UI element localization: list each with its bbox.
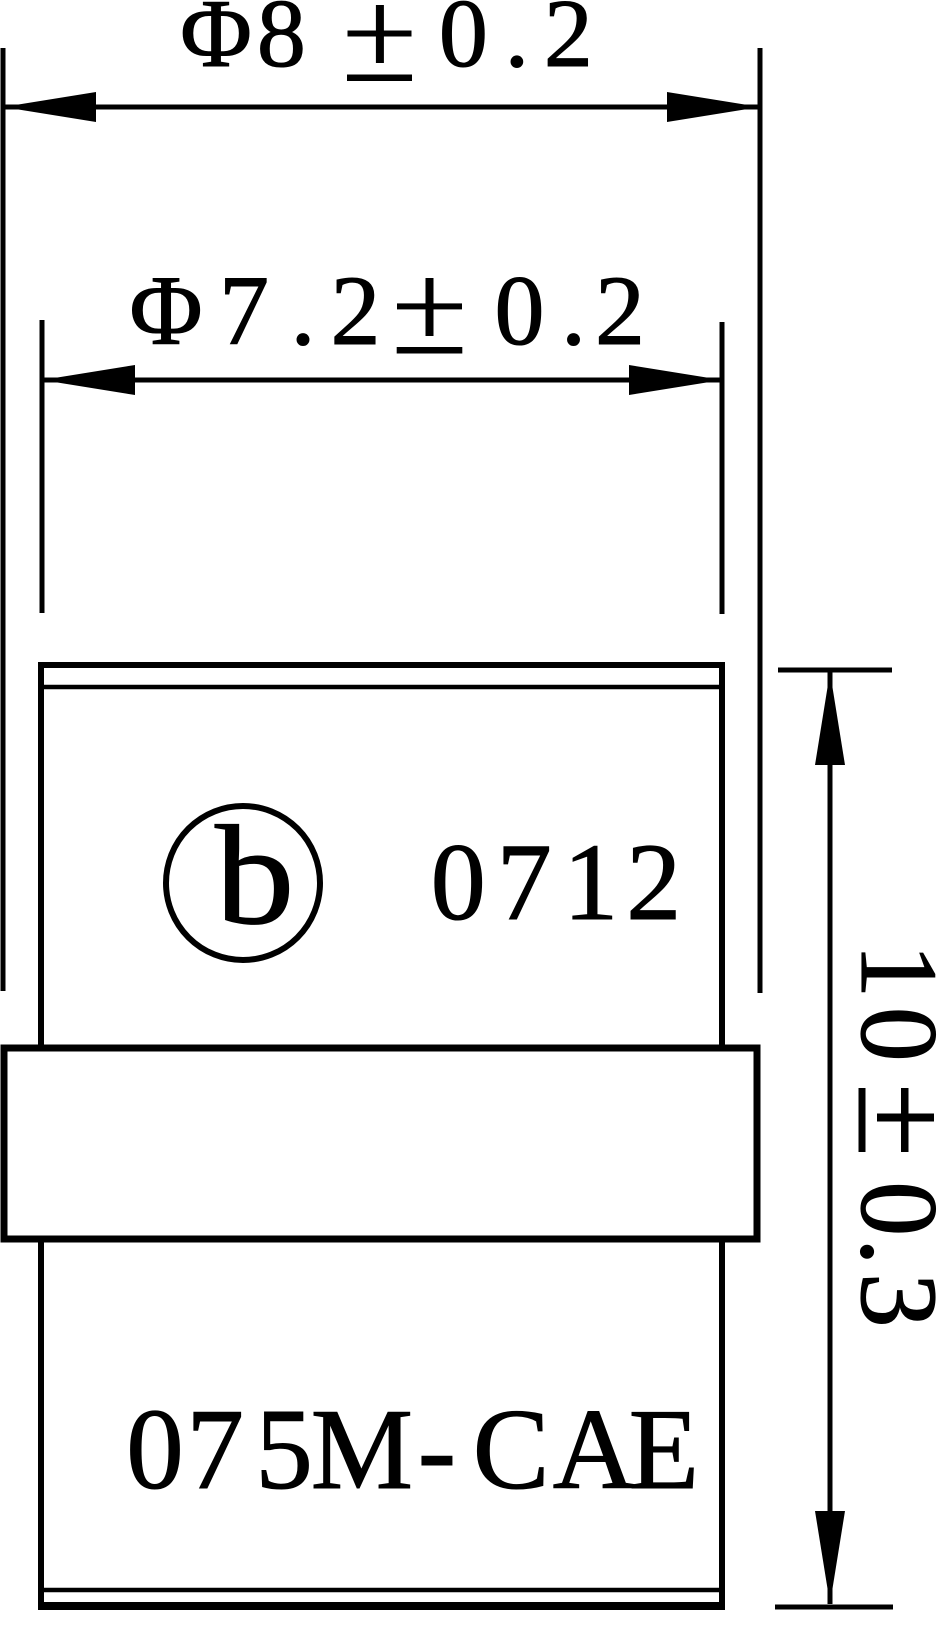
- svg-text:0: 0: [838, 1181, 940, 1236]
- svg-text:5: 5: [255, 1386, 313, 1513]
- svg-text:Φ: Φ: [130, 255, 203, 366]
- svg-text:.: .: [505, 0, 529, 88]
- svg-text:0: 0: [439, 0, 488, 88]
- svg-text:0: 0: [495, 255, 545, 366]
- svg-text:Φ: Φ: [180, 0, 252, 88]
- svg-text:2: 2: [544, 0, 593, 88]
- svg-text:C: C: [473, 1386, 550, 1513]
- svg-text:7: 7: [219, 255, 269, 366]
- svg-text:3: 3: [838, 1273, 940, 1328]
- svg-text:.: .: [291, 255, 316, 366]
- svg-text:A: A: [553, 1386, 636, 1513]
- svg-text:7: 7: [497, 821, 552, 943]
- svg-text:2: 2: [595, 255, 645, 366]
- svg-text:1: 1: [838, 943, 940, 998]
- svg-text:M: M: [311, 1386, 413, 1513]
- svg-text:2: 2: [626, 821, 681, 943]
- svg-text:.: .: [561, 255, 586, 366]
- svg-text:1: 1: [563, 821, 618, 943]
- svg-text:.: .: [838, 1238, 940, 1266]
- svg-text:0: 0: [126, 1386, 184, 1513]
- svg-text:0: 0: [838, 1007, 940, 1062]
- svg-text:E: E: [629, 1386, 699, 1513]
- svg-text:b: b: [215, 797, 295, 954]
- svg-text:7: 7: [186, 1386, 244, 1513]
- svg-text:0: 0: [431, 821, 486, 943]
- svg-text:2: 2: [331, 255, 381, 366]
- svg-text:8: 8: [257, 0, 306, 88]
- svg-text:-: -: [418, 1386, 456, 1513]
